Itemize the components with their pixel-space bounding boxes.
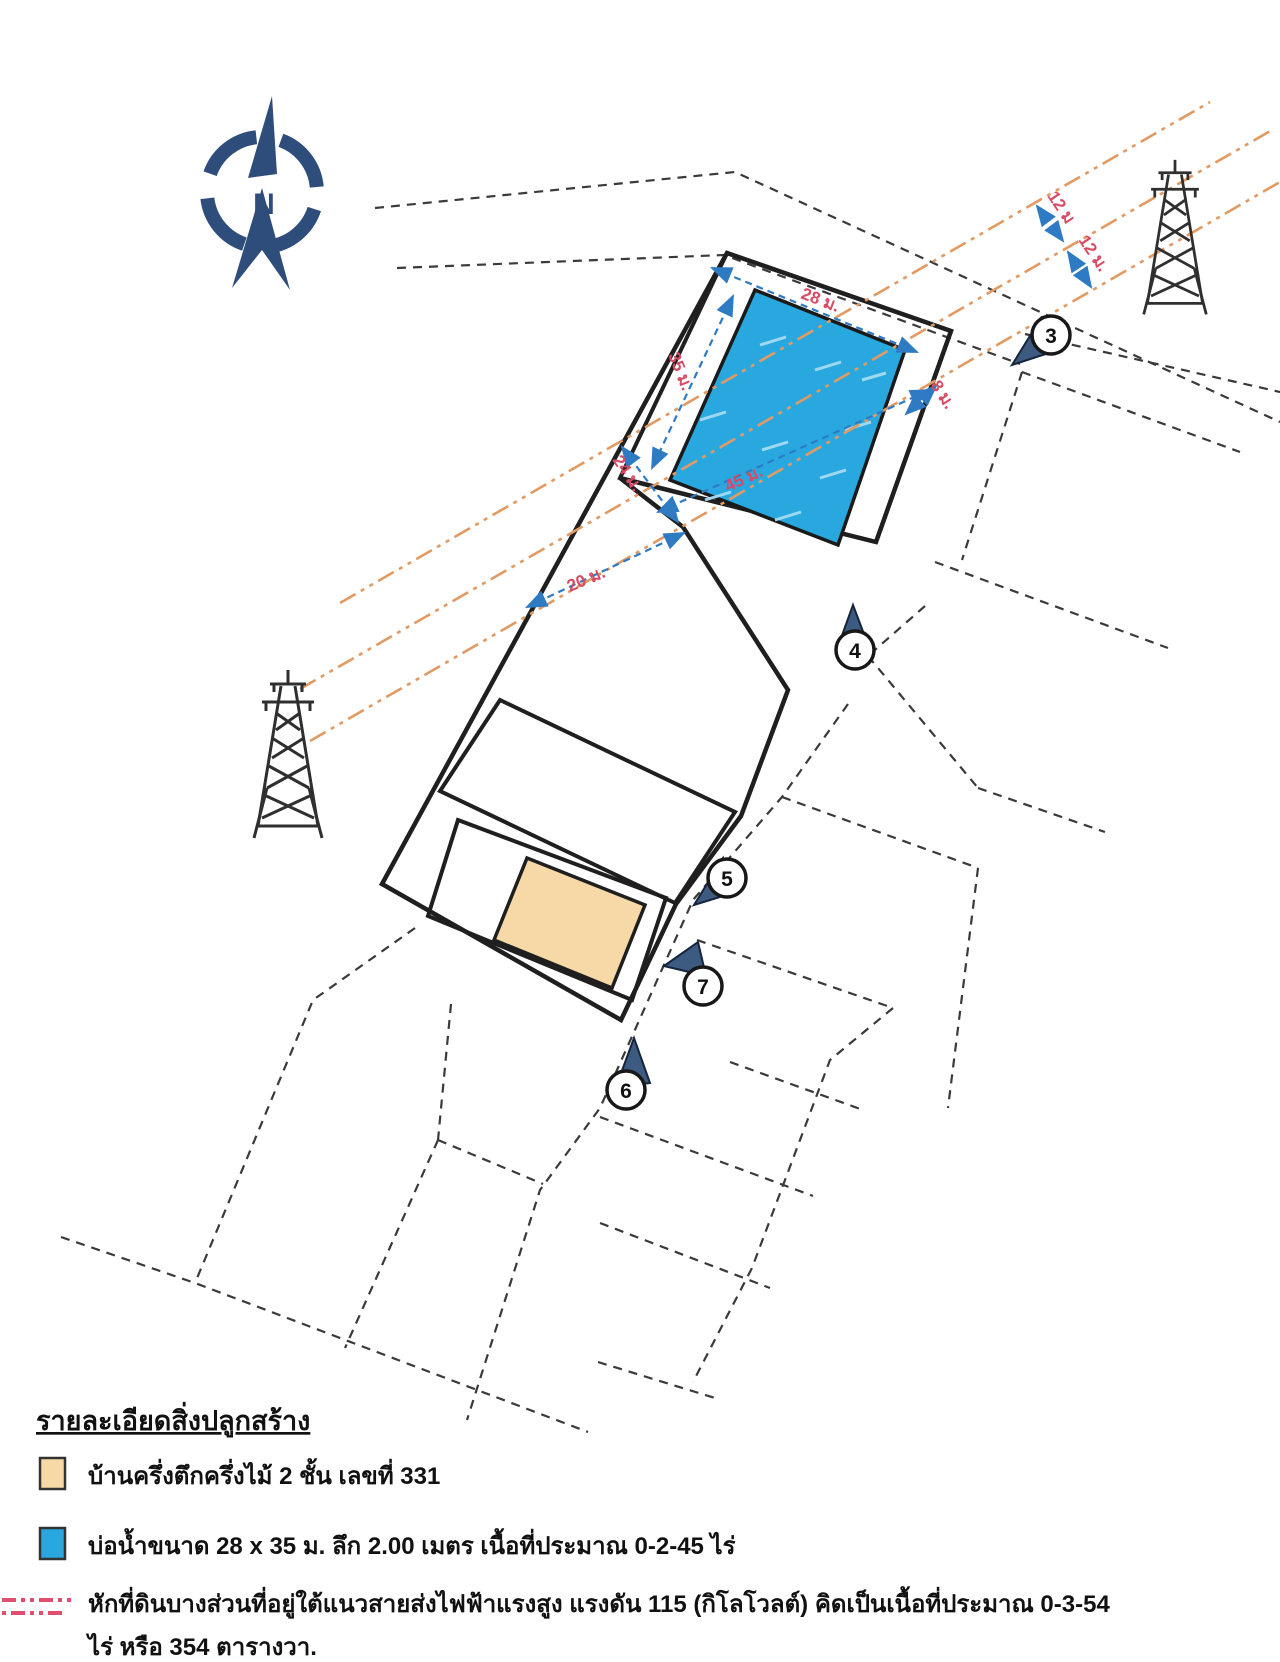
transmission-tower-right (1144, 160, 1207, 315)
survey-plan-page: N 28 ม. 35 ม. 45 ม. 8 ม. 24 ม. 20 ม. 12 … (0, 0, 1280, 1662)
legend-swatch-house (40, 1458, 65, 1489)
label-12m-lower: 12 ม. (1075, 232, 1113, 275)
label-12m-upper: 12 ม (1044, 188, 1079, 228)
marker-6: 6 (607, 1038, 650, 1109)
transmission-tower-left (254, 670, 322, 838)
svg-text:5: 5 (721, 868, 733, 891)
svg-text:6: 6 (620, 1080, 632, 1103)
legend-item-powerline-line2: ไร่ หรือ 354 ตารางวา. (85, 1632, 317, 1661)
marker-3: 3 (1012, 316, 1070, 365)
legend-item-house: บ้านครึ่งตึกครึ่งไม้ 2 ชั้น เลขที่ 331 (88, 1457, 440, 1490)
label-24m: 24 ม. (609, 452, 647, 495)
legend-item-powerline-line1: หักที่ดินบางส่วนที่อยู่ใต้แนวสายส่งไฟฟ้า… (88, 1585, 1110, 1619)
marker-4: 4 (836, 605, 874, 669)
inner-field-outline (440, 700, 735, 903)
legend: รายละเอียดสิ่งปลูกสร้าง บ้านครึ่งตึกครึ่… (2, 1401, 1110, 1661)
svg-text:7: 7 (697, 976, 709, 999)
legend-symbol-powerline (2, 1600, 72, 1613)
marker-7: 7 (664, 942, 722, 1005)
legend-swatch-pond (40, 1528, 65, 1559)
road-dashed-east (467, 704, 848, 1420)
legend-title: รายละเอียดสิ่งปลูกสร้าง (36, 1401, 310, 1438)
survey-plan-drawing: N 28 ม. 35 ม. 45 ม. 8 ม. 24 ม. 20 ม. 12 … (0, 0, 1280, 1662)
label-20m: 20 ม. (564, 563, 608, 596)
svg-text:4: 4 (849, 640, 861, 663)
road-dashed-second (397, 255, 1020, 364)
legend-item-pond: บ่อน้ำขนาด 28 x 35 ม. ลึก 2.00 เมตร เนื้… (88, 1527, 736, 1560)
compass-rose: N (193, 96, 332, 290)
svg-text:3: 3 (1045, 325, 1057, 348)
compass-north-label: N (253, 188, 275, 221)
powerline-1 (340, 102, 1210, 603)
